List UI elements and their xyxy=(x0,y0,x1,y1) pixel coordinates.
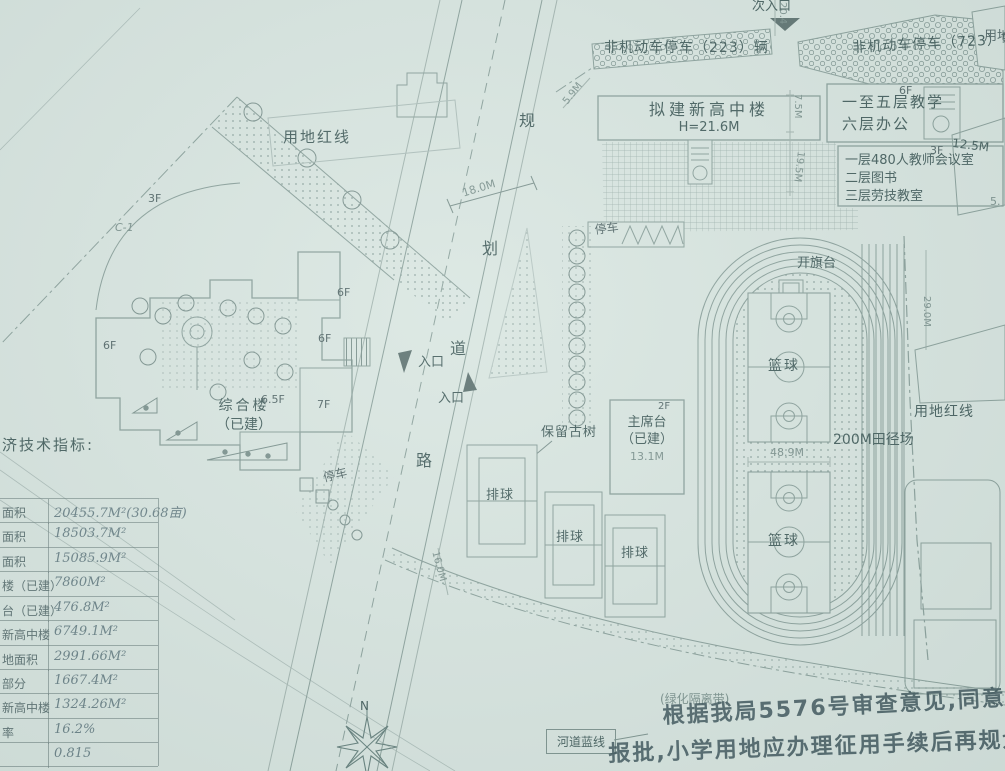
bike-parking-left-label: 非机动车停车（223）辆 xyxy=(604,40,769,56)
dim-5: 5. xyxy=(990,196,1001,209)
annex-line3: 三层劳技教室 xyxy=(845,190,923,205)
dim-7-5: 7.5M xyxy=(792,94,804,119)
volleyball-2-label: 排球 xyxy=(556,531,584,546)
river-line-label: 河道蓝线 xyxy=(557,733,605,750)
stage-floor-label: 2F xyxy=(658,401,670,413)
floor-6f-b-label: 6F xyxy=(318,333,331,346)
flag-stand-label: 开旗台 xyxy=(797,257,836,272)
row-value: 1324.26M² xyxy=(54,697,126,712)
row-value: 6749.1M² xyxy=(54,624,118,639)
row-label: 新高中楼 xyxy=(2,626,50,643)
entrance-1-label: 入口 xyxy=(418,356,444,371)
row-value: 1667.4M² xyxy=(54,673,118,688)
table-row: 新高中楼6749.1M² xyxy=(0,620,158,646)
river-line-box: 河道蓝线 xyxy=(546,729,616,754)
table-row: 率16.2% xyxy=(0,718,158,744)
table-row: 面积18503.7M² xyxy=(0,522,158,548)
stage-dim-label: 13.1M xyxy=(610,451,684,464)
row-value: 18503.7M² xyxy=(54,526,126,541)
row-label: 面积 xyxy=(2,553,26,570)
row-value: 7860M² xyxy=(54,575,106,590)
row-label: 台（已建） xyxy=(2,602,62,619)
red-line-left-label: 用地红线 xyxy=(283,129,351,146)
row-value: 16.2% xyxy=(54,722,95,737)
annex-line1: 一层480人教师会议室 xyxy=(845,154,974,169)
annex-line2: 二层图书 xyxy=(845,172,897,187)
complex-status-label: （已建） xyxy=(196,417,292,433)
table-right-edge xyxy=(158,498,159,766)
table-bottom-line xyxy=(0,766,158,767)
table-row: 0.815 xyxy=(0,742,158,768)
floor-3f-label: 3F xyxy=(148,193,161,206)
basketball-1-label: 篮球 xyxy=(768,358,800,374)
road-char-1: 规 xyxy=(519,112,535,130)
old-tree-label: 保留古树 xyxy=(541,426,597,441)
table-row: 楼（已建）7860M² xyxy=(0,571,158,597)
parking-top-label: 停车 xyxy=(594,221,620,238)
row-label: 面积 xyxy=(2,528,26,545)
row-value: 476.8M² xyxy=(54,600,110,615)
floor-6f-c-label: 6F xyxy=(103,340,116,353)
row-label: 新高中楼 xyxy=(2,699,50,716)
office-floor-label: 六层办公 xyxy=(842,116,910,133)
road-char-4: 路 xyxy=(416,452,432,470)
basketball-2-label: 篮球 xyxy=(768,533,800,549)
row-label: 楼（已建） xyxy=(2,577,62,594)
row-value: 2991.66M² xyxy=(54,649,126,664)
north-label: N xyxy=(360,700,369,714)
entrance-2-label: 入口 xyxy=(438,392,464,407)
row-label: 部分 xyxy=(2,675,26,692)
row-value: 15085.9M² xyxy=(54,551,126,566)
teach-floors-label: 一至五层教学 xyxy=(842,94,944,111)
track-label: 200M田径场 xyxy=(833,432,914,448)
table-row: 新高中楼1324.26M² xyxy=(0,693,158,719)
row-value: 20455.7M²(30.68亩) xyxy=(54,502,187,521)
table-row: 地面积2991.66M² xyxy=(0,645,158,671)
table-row: 部分1667.4M² xyxy=(0,669,158,695)
table-title: 济技术指标: xyxy=(2,437,94,454)
road-char-2: 划 xyxy=(482,240,498,258)
volleyball-3-label: 排球 xyxy=(621,547,649,562)
stage-label: 主席台 xyxy=(610,416,684,431)
row-label: 率 xyxy=(2,724,14,741)
dim-29: 29.0M xyxy=(921,296,933,327)
row-value: 0.815 xyxy=(54,746,91,761)
table-row: 面积20455.7M²(30.68亩) xyxy=(0,498,158,524)
track-dim-label: 48.9M xyxy=(770,447,804,460)
table-row: 面积15085.9M² xyxy=(0,547,158,573)
floor-7f-label: 7F xyxy=(317,399,330,412)
road-char-3: 道 xyxy=(450,340,466,358)
red-line-corner-label: 用地 xyxy=(984,30,1005,45)
red-line-right-label: 用地红线 xyxy=(914,404,974,420)
table-row: 台（已建）476.8M² xyxy=(0,596,158,622)
site-plan-scan: 次入口 20.4 非机动车停车（223）辆 非机动车停车（723）辆 用地 用地… xyxy=(0,0,1005,771)
stage-status-label: （已建） xyxy=(610,433,684,448)
new-building-height: H=21.6M xyxy=(598,121,820,136)
code-c1-label: C-1 xyxy=(115,222,134,235)
row-label: 面积 xyxy=(2,504,26,521)
complex-name-label: 综合楼 xyxy=(196,398,292,414)
floor-6f-a-label: 6F xyxy=(337,287,350,300)
volleyball-1-label: 排球 xyxy=(486,489,514,504)
dim-20-4: 20.4 xyxy=(777,2,789,24)
new-building-label: 拟建新高中楼 xyxy=(598,101,820,119)
row-label: 地面积 xyxy=(2,651,38,668)
